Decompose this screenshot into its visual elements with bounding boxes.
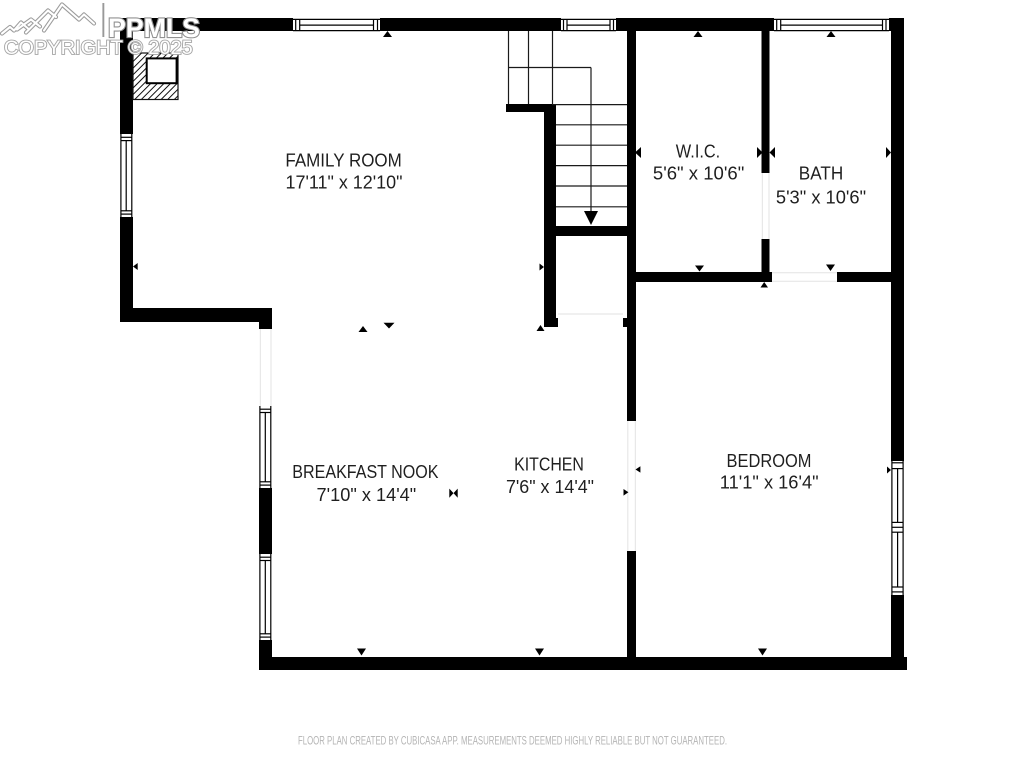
svg-text:FAMILY ROOM: FAMILY ROOM — [285, 150, 401, 170]
svg-text:BATH: BATH — [799, 164, 843, 184]
svg-text:7'10" x 14'4": 7'10" x 14'4" — [317, 485, 417, 505]
svg-text:FLOOR PLAN CREATED BY CUBICASA: FLOOR PLAN CREATED BY CUBICASA APP. MEAS… — [298, 735, 727, 748]
svg-text:11'1" x 16'4": 11'1" x 16'4" — [720, 472, 819, 492]
svg-text:W.I.C.: W.I.C. — [676, 141, 720, 161]
svg-text:KITCHEN: KITCHEN — [514, 455, 584, 475]
svg-text:COPYRIGHT © 2025: COPYRIGHT © 2025 — [4, 38, 193, 59]
svg-text:17'11" x 12'10": 17'11" x 12'10" — [286, 172, 403, 192]
svg-text:5'6" x 10'6": 5'6" x 10'6" — [653, 164, 744, 184]
svg-text:7'6" x 14'4": 7'6" x 14'4" — [506, 477, 594, 497]
svg-text:BREAKFAST NOOK: BREAKFAST NOOK — [292, 462, 438, 482]
svg-text:5'3" x 10'6": 5'3" x 10'6" — [776, 188, 866, 208]
svg-text:BEDROOM: BEDROOM — [727, 451, 812, 471]
